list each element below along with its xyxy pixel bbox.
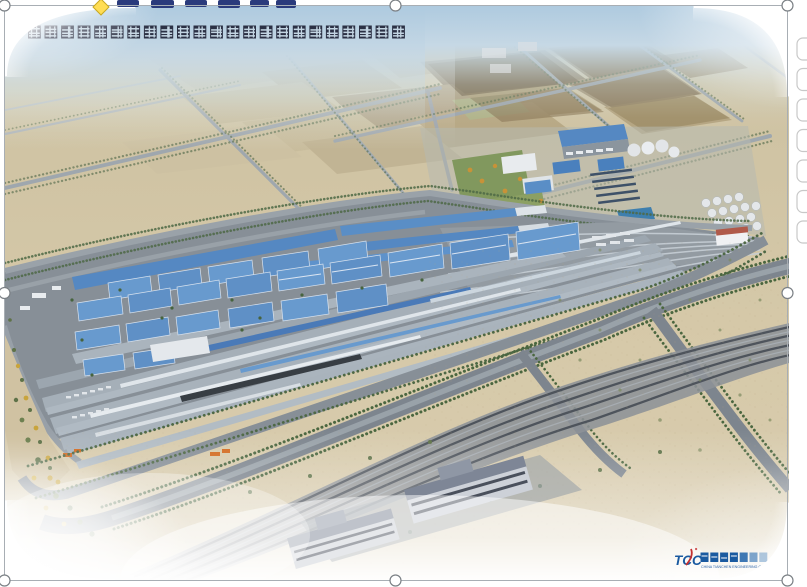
svg-text:CHINA TIANCHEN ENGINEERING CO: CHINA TIANCHEN ENGINEERING CO [701,565,764,569]
svg-text:TCC: TCC [674,553,702,568]
